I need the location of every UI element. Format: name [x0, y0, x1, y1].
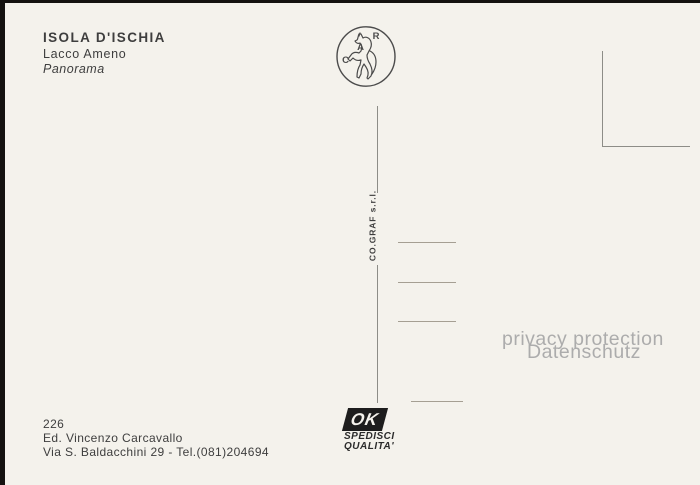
address-line-1 [398, 242, 456, 243]
card-number: 226 [43, 417, 269, 431]
caption-block: ISOLA D'ISCHIA Lacco Ameno Panorama [43, 30, 166, 77]
stamp-letter-c: C [342, 55, 349, 66]
publisher-address: Via S. Baldacchini 29 - Tel.(081)204694 [43, 445, 269, 459]
quality-mark-ok: OK [349, 410, 380, 430]
stamp-box-corner [602, 51, 690, 147]
address-line-2 [398, 282, 456, 283]
publisher-name: Ed. Vincenzo Carcavallo [43, 431, 269, 445]
stamp-letter-a: A [357, 42, 364, 53]
postcard-title: ISOLA D'ISCHIA [43, 30, 166, 46]
postcard-location: Lacco Ameno [43, 47, 166, 62]
horse-stamp-icon: R A C [335, 25, 397, 88]
address-line-4 [411, 401, 463, 402]
postcard-scan: ISOLA D'ISCHIA Lacco Ameno Panorama R A … [0, 0, 700, 485]
address-line-3 [398, 321, 456, 322]
quality-mark-line2: QUALITA' [344, 441, 394, 452]
quality-mark-icon: OK [342, 408, 388, 431]
privacy-watermark-line2: Datenschutz [527, 341, 641, 364]
postcard-back: ISOLA D'ISCHIA Lacco Ameno Panorama R A … [5, 3, 700, 485]
stamp-letter-r: R [373, 31, 380, 42]
printer-credit: CO.GRAF s.r.l. [368, 186, 379, 266]
publisher-stamp: R A C [335, 25, 397, 88]
postcard-caption: Panorama [43, 62, 166, 77]
center-divider-upper [377, 106, 378, 193]
imprint-block: 226 Ed. Vincenzo Carcavallo Via S. Balda… [43, 417, 269, 459]
center-divider-lower [377, 265, 378, 403]
